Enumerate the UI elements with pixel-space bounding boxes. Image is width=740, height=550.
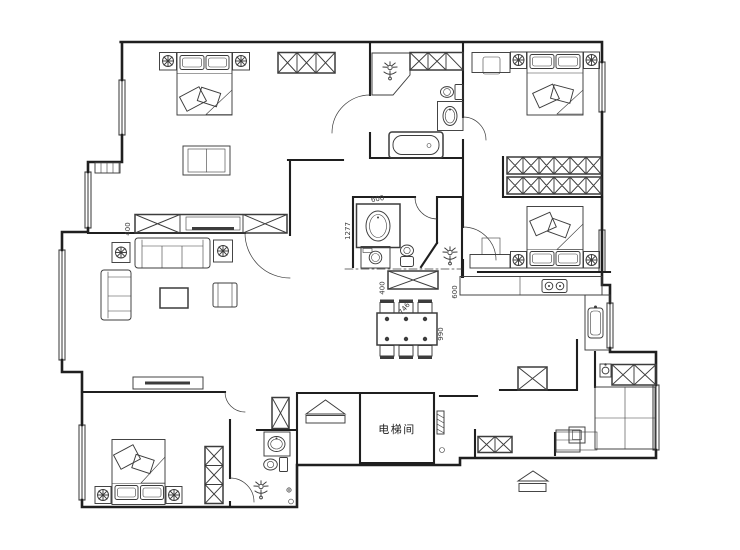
table-lamp-icon bbox=[586, 55, 597, 66]
washing-machine-icon bbox=[361, 247, 390, 269]
table-lamp-icon bbox=[236, 56, 247, 67]
dim-dining-table: 990 bbox=[437, 327, 445, 340]
dim-living-cabinet: 400 bbox=[124, 222, 132, 235]
bed-end-bench bbox=[183, 146, 230, 175]
nightstand bbox=[95, 487, 111, 504]
dimension-labels: 400 600 1277 400 600 746 990 bbox=[124, 194, 459, 341]
bed bbox=[527, 207, 583, 269]
dressing-table bbox=[388, 271, 438, 289]
dim-kitchen-counter: 600 bbox=[451, 285, 459, 298]
toilet-icon bbox=[264, 458, 288, 472]
hall-cabinet bbox=[272, 398, 289, 429]
entry-marker-icon bbox=[518, 471, 548, 492]
bed bbox=[177, 53, 232, 116]
bedroom-4 bbox=[95, 440, 223, 505]
bed bbox=[527, 52, 583, 115]
table-lamp-icon bbox=[586, 255, 597, 266]
sofa-loveseat bbox=[101, 270, 131, 320]
window-icon bbox=[85, 172, 91, 228]
sofa-three-seat bbox=[135, 238, 210, 268]
dining-chair bbox=[418, 300, 432, 314]
dim-vanity-width: 600 bbox=[370, 194, 385, 204]
duct-shaft bbox=[437, 411, 445, 453]
wardrobe-run bbox=[135, 215, 287, 234]
table-lamp-icon bbox=[513, 255, 524, 266]
nightstand bbox=[511, 252, 527, 269]
dining-chair bbox=[418, 346, 432, 360]
window-icon bbox=[59, 250, 65, 360]
balcony-cabinets bbox=[612, 365, 656, 386]
side-table bbox=[112, 243, 130, 263]
coffee-table bbox=[160, 288, 188, 308]
wardrobe-row bbox=[507, 157, 601, 174]
window-icon bbox=[79, 425, 85, 500]
corner-cabinet bbox=[518, 367, 547, 390]
living-room bbox=[101, 238, 237, 389]
armchair bbox=[213, 283, 237, 307]
kitchen-counter bbox=[460, 277, 602, 296]
dim-dressing-table: 400 bbox=[379, 281, 387, 294]
window-icon bbox=[599, 62, 605, 112]
nightstand bbox=[511, 52, 527, 69]
shower-icon bbox=[443, 247, 457, 265]
interior-walls bbox=[82, 42, 610, 507]
dining-chair bbox=[399, 346, 413, 360]
kitchen-sink-icon bbox=[588, 306, 603, 339]
bathroom-central bbox=[345, 204, 462, 289]
window-icon bbox=[119, 80, 125, 135]
floor-lamp-icon bbox=[116, 247, 127, 258]
window-icon bbox=[653, 385, 659, 450]
nightstand bbox=[166, 487, 182, 504]
desk bbox=[472, 53, 510, 75]
nightstand bbox=[233, 53, 250, 71]
nightstand bbox=[584, 52, 600, 69]
floor-plan-page: 电梯间 400 600 1277 400 600 746 990 bbox=[0, 0, 740, 550]
bedroom-master bbox=[95, 53, 335, 234]
elevator-room: 电梯间 bbox=[378, 423, 416, 436]
table-lamp-icon bbox=[98, 490, 109, 501]
desk bbox=[470, 238, 510, 268]
sink-vanity bbox=[264, 432, 290, 456]
wardrobe-column bbox=[205, 447, 223, 504]
bed bbox=[112, 440, 165, 505]
table-lamp-icon bbox=[169, 490, 180, 501]
nightstand bbox=[584, 252, 600, 269]
nightstand bbox=[160, 53, 177, 71]
shoe-cabinet bbox=[478, 437, 512, 453]
bedroom-2 bbox=[472, 52, 601, 194]
kitchen bbox=[460, 277, 610, 351]
kitchen-counter bbox=[585, 295, 610, 350]
floor-lamp-icon bbox=[218, 246, 229, 257]
dining-chair bbox=[380, 300, 394, 314]
floor-plan-canvas: 电梯间 400 600 1277 400 600 746 990 bbox=[0, 0, 740, 550]
entry-bench bbox=[556, 430, 580, 452]
sink-vanity bbox=[357, 204, 401, 248]
bathtub-icon bbox=[389, 132, 443, 158]
ac-louver bbox=[95, 163, 120, 174]
laundry-area bbox=[595, 387, 655, 449]
place-settings bbox=[385, 317, 427, 341]
cooktop-icon bbox=[542, 280, 567, 293]
bath-cabinets bbox=[410, 53, 463, 71]
wardrobe-row bbox=[507, 177, 601, 194]
side-table bbox=[214, 240, 233, 262]
floor-drain-icon bbox=[287, 488, 294, 504]
closet-wardrobe bbox=[278, 53, 335, 74]
elevator-room-label: 电梯间 bbox=[378, 423, 416, 436]
balcony-sink-icon bbox=[600, 363, 611, 377]
utility-balcony bbox=[518, 363, 656, 450]
stairwell bbox=[306, 400, 345, 423]
bathroom-ensuite-bottom bbox=[254, 398, 293, 504]
dining-chair bbox=[380, 346, 394, 360]
table-lamp-icon bbox=[513, 55, 524, 66]
shower-icon bbox=[383, 62, 397, 80]
dim-vanity-length: 1277 bbox=[344, 222, 352, 240]
table-lamp-icon bbox=[163, 56, 174, 67]
toilet-icon bbox=[441, 85, 464, 100]
shower-icon bbox=[254, 481, 268, 499]
toilet-icon bbox=[401, 245, 414, 267]
bedroom-3 bbox=[470, 207, 600, 269]
tv-cabinet bbox=[133, 377, 203, 389]
sink-vanity bbox=[438, 102, 464, 131]
bathroom-ensuite-top bbox=[372, 53, 463, 159]
